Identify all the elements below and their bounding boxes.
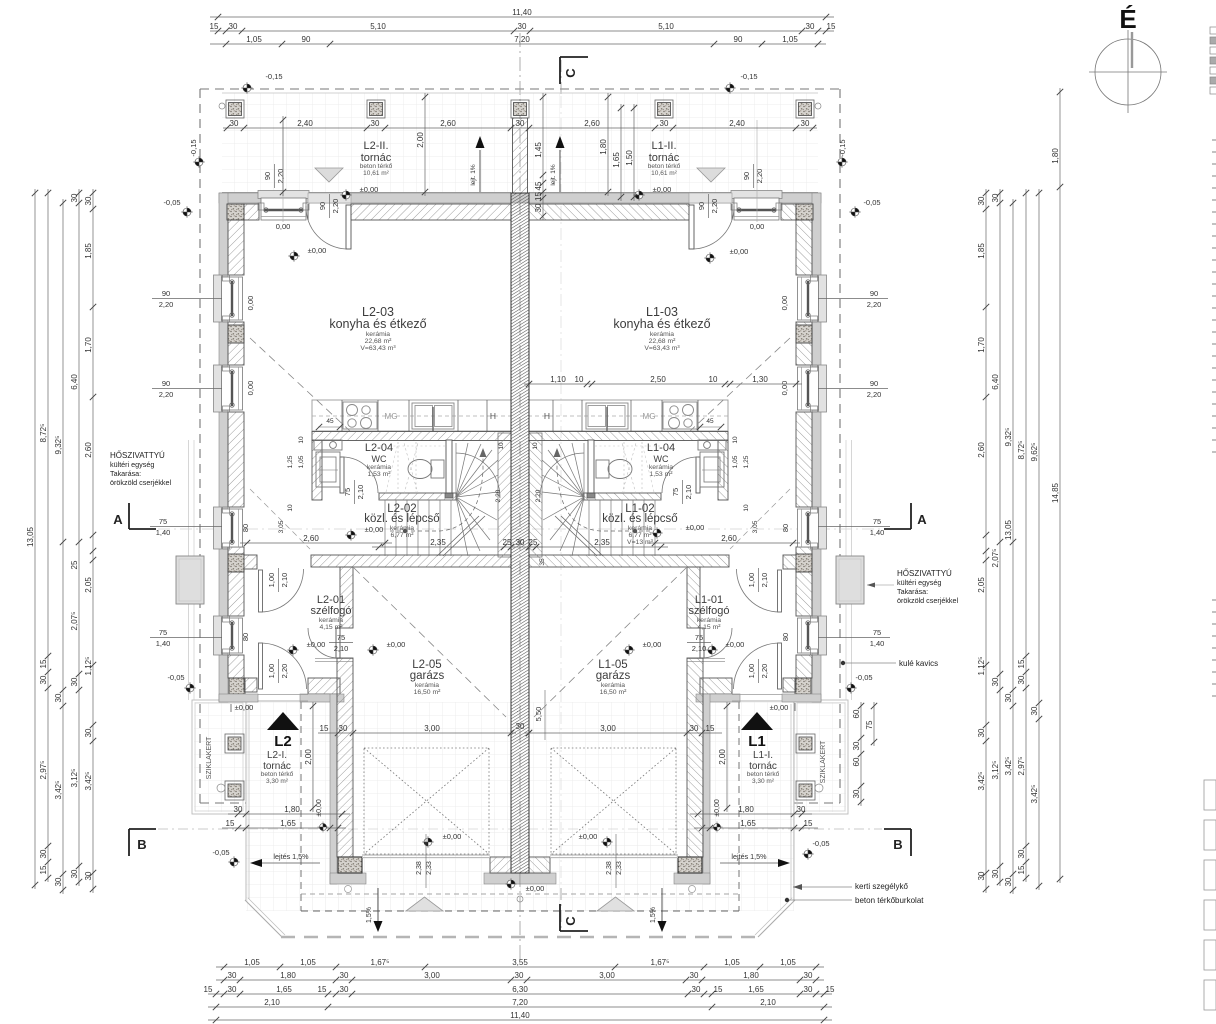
svg-text:C: C [563,68,578,78]
svg-text:90: 90 [318,202,327,210]
svg-text:75: 75 [695,633,703,642]
svg-text:30: 30 [1004,877,1013,886]
svg-text:kerámia: kerámia [601,682,625,689]
svg-text:30: 30 [1030,706,1039,715]
svg-text:szélfogó: szélfogó [311,605,352,617]
svg-text:13,05: 13,05 [26,526,35,547]
svg-text:1,05: 1,05 [246,35,262,44]
svg-text:1,67⁵: 1,67⁵ [651,958,670,967]
svg-text:2,38: 2,38 [416,861,423,875]
svg-text:H: H [544,411,550,421]
svg-text:kültéri egység: kültéri egység [897,578,941,587]
svg-text:80: 80 [781,524,790,532]
svg-text:1,65: 1,65 [276,985,292,994]
svg-text:beton térkő: beton térkő [360,163,393,170]
svg-text:1,65: 1,65 [740,819,756,828]
svg-text:30: 30 [229,22,238,31]
svg-text:30: 30 [534,203,543,212]
svg-text:kerámia: kerámia [319,617,343,624]
svg-text:2,33: 2,33 [426,861,433,875]
svg-text:kerámia: kerámia [628,525,652,532]
svg-text:0,00: 0,00 [246,296,255,311]
svg-text:-0,05: -0,05 [167,673,184,682]
svg-text:90: 90 [734,35,743,44]
svg-text:2,97⁵: 2,97⁵ [39,761,48,780]
svg-text:30: 30 [340,985,349,994]
svg-text:2,60: 2,60 [584,119,600,128]
svg-text:30: 30 [84,728,93,737]
svg-text:6,77 m²: 6,77 m² [628,532,652,539]
svg-text:±0,00: ±0,00 [316,799,323,817]
svg-text:2,50: 2,50 [650,375,666,384]
svg-text:15: 15 [1017,865,1026,874]
svg-text:30: 30 [70,677,79,686]
svg-text:16,50 m²: 16,50 m² [414,689,442,696]
svg-text:V=63,43 m³: V=63,43 m³ [360,345,396,352]
svg-text:lejt. 1%: lejt. 1% [550,164,557,186]
svg-text:6,40: 6,40 [991,374,1000,390]
svg-text:30: 30 [977,196,986,205]
svg-text:30: 30 [692,985,701,994]
svg-text:30: 30 [234,805,243,814]
svg-text:1,80: 1,80 [1051,148,1060,164]
svg-text:15: 15 [1017,659,1026,668]
svg-text:2,20: 2,20 [867,300,882,309]
svg-text:15: 15 [226,819,235,828]
svg-text:1,70: 1,70 [977,337,986,353]
svg-text:15: 15 [714,985,723,994]
svg-text:2,00: 2,00 [304,749,313,765]
svg-text:14,85: 14,85 [1051,482,1060,503]
svg-text:30: 30 [515,971,524,980]
svg-text:2,10: 2,10 [684,485,693,500]
svg-text:1,65: 1,65 [612,152,621,168]
svg-text:1,10: 1,10 [550,375,566,384]
svg-text:3,42⁵: 3,42⁵ [84,772,93,791]
svg-text:75: 75 [337,633,345,642]
svg-text:2,10: 2,10 [334,644,349,653]
svg-text:szélfogó: szélfogó [689,605,730,617]
svg-text:3,30 m²: 3,30 m² [752,778,775,785]
svg-text:±0,00: ±0,00 [235,703,254,712]
svg-text:9,32⁵: 9,32⁵ [1004,428,1013,447]
svg-text:0,00: 0,00 [780,381,789,396]
svg-text:10: 10 [743,504,750,512]
svg-text:15: 15 [320,724,329,733]
svg-text:10: 10 [709,375,718,384]
svg-text:30: 30 [991,869,1000,878]
svg-text:10: 10 [298,436,305,444]
svg-text:3,12⁵: 3,12⁵ [70,769,79,788]
svg-text:30: 30 [84,871,93,880]
svg-text:75: 75 [671,488,680,496]
svg-text:75: 75 [865,720,874,729]
svg-text:1,05: 1,05 [780,958,796,967]
svg-text:2,60: 2,60 [721,534,737,543]
svg-text:WC: WC [654,454,669,464]
svg-text:1,30: 1,30 [752,375,768,384]
svg-text:L2-04: L2-04 [365,442,393,454]
svg-text:3,42⁵: 3,42⁵ [1004,757,1013,776]
svg-text:±0,00: ±0,00 [579,832,598,841]
svg-text:±0,00: ±0,00 [526,884,545,893]
svg-text:3,00: 3,00 [424,971,440,980]
svg-text:30: 30 [806,22,815,31]
svg-text:2,20: 2,20 [710,199,719,214]
svg-text:2,10: 2,10 [760,998,776,1007]
svg-text:1,85: 1,85 [84,243,93,259]
svg-text:25: 25 [503,538,512,547]
svg-text:30: 30 [804,971,813,980]
svg-text:2,10: 2,10 [692,644,707,653]
svg-text:2,20: 2,20 [867,390,882,399]
svg-text:2,07⁵: 2,07⁵ [70,612,79,631]
svg-text:15: 15 [534,192,543,201]
svg-text:kerámia: kerámia [367,464,391,471]
svg-text:45: 45 [326,418,334,425]
svg-text:SZIKLAKERT: SZIKLAKERT [820,740,827,783]
svg-text:30: 30 [516,119,525,128]
svg-text:90: 90 [162,379,170,388]
svg-text:V=63,43 m³: V=63,43 m³ [644,345,680,352]
svg-text:2,20: 2,20 [159,390,174,399]
svg-text:9,62⁵: 9,62⁵ [1030,443,1039,462]
svg-text:30: 30 [70,869,79,878]
svg-text:C: C [563,916,578,926]
svg-text:15: 15 [204,985,213,994]
svg-text:közl. és lépcső: közl. és lépcső [602,513,677,525]
svg-text:2,38: 2,38 [606,861,613,875]
svg-text:2,97⁵: 2,97⁵ [1017,757,1026,776]
svg-text:30: 30 [852,789,861,798]
svg-text:30: 30 [339,724,348,733]
svg-text:-0,15: -0,15 [838,139,847,156]
svg-text:10: 10 [575,375,584,384]
svg-text:90: 90 [697,202,706,210]
svg-text:MG: MG [643,412,656,421]
svg-text:30: 30 [690,971,699,980]
svg-text:75: 75 [343,488,352,496]
svg-text:-0,05: -0,05 [212,848,229,857]
svg-text:±0,00: ±0,00 [714,799,721,817]
svg-text:1,80: 1,80 [284,805,300,814]
svg-text:22,68 m²: 22,68 m² [649,338,677,345]
svg-text:15: 15 [706,724,715,733]
svg-text:2,05: 2,05 [84,577,93,593]
svg-text:L1-II.: L1-II. [651,140,676,152]
svg-text:3,00: 3,00 [424,724,440,733]
svg-text:60: 60 [852,757,861,766]
svg-text:2,20: 2,20 [276,169,285,184]
svg-text:1,53 m²: 1,53 m² [649,471,673,478]
svg-text:2,60: 2,60 [303,534,319,543]
svg-text:garázs: garázs [596,670,631,682]
svg-text:±0,00: ±0,00 [387,640,406,649]
svg-text:HŐSZIVATTYÚ: HŐSZIVATTYÚ [110,451,165,460]
svg-text:16,50 m²: 16,50 m² [600,689,628,696]
svg-text:1,65: 1,65 [280,819,296,828]
svg-text:1,12⁵: 1,12⁵ [977,657,986,676]
svg-text:beton térkőburkolat: beton térkőburkolat [855,896,924,905]
svg-text:30: 30 [797,805,806,814]
svg-text:MG: MG [385,412,398,421]
svg-text:B: B [893,837,902,852]
svg-text:WC: WC [372,454,387,464]
svg-text:2,10: 2,10 [356,485,365,500]
svg-text:6,77 m²: 6,77 m² [390,532,414,539]
svg-text:L2-I.: L2-I. [267,750,287,761]
svg-text:2,20: 2,20 [331,199,340,214]
svg-text:1,80: 1,80 [280,971,296,980]
svg-text:-0,15: -0,15 [189,139,198,156]
svg-text:1,40: 1,40 [156,528,171,537]
svg-text:1,40: 1,40 [870,639,885,648]
svg-text:30: 30 [54,693,63,702]
svg-text:45: 45 [706,418,714,425]
svg-text:80: 80 [241,524,250,532]
svg-text:0,00: 0,00 [246,381,255,396]
svg-text:2,10: 2,10 [760,573,769,588]
svg-text:±0,00: ±0,00 [365,525,384,534]
svg-text:2,20: 2,20 [280,664,289,679]
svg-text:1,70: 1,70 [84,337,93,353]
svg-text:É: É [1119,4,1136,34]
svg-text:35: 35 [539,558,546,566]
svg-text:2,20: 2,20 [760,664,769,679]
svg-text:0,00: 0,00 [276,222,291,231]
svg-text:11,40: 11,40 [512,8,532,17]
svg-text:kerámia: kerámia [697,617,721,624]
svg-text:1,00: 1,00 [267,664,276,679]
svg-text:1,65: 1,65 [748,985,764,994]
svg-text:2,10: 2,10 [280,573,289,588]
svg-text:1,05: 1,05 [732,455,739,468]
svg-text:3,05: 3,05 [752,520,759,533]
svg-text:2,07⁵: 2,07⁵ [991,549,1000,568]
svg-text:2,40: 2,40 [297,119,313,128]
svg-text:1,67⁵: 1,67⁵ [371,958,390,967]
svg-text:45: 45 [534,181,543,190]
svg-text:2,20: 2,20 [495,489,502,502]
svg-text:30: 30 [340,971,349,980]
svg-text:kerámia: kerámia [649,464,673,471]
svg-text:11,40: 11,40 [510,1011,530,1020]
svg-text:B: B [137,837,146,852]
svg-text:L1: L1 [748,733,766,750]
svg-text:30: 30 [228,971,237,980]
svg-text:10: 10 [532,442,539,450]
svg-text:1,5%: 1,5% [650,907,657,923]
svg-text:5,10: 5,10 [658,22,674,31]
svg-text:1,50: 1,50 [625,150,634,166]
svg-text:3,00: 3,00 [599,971,615,980]
svg-text:3,55: 3,55 [512,958,528,967]
svg-text:1,00: 1,00 [747,664,756,679]
svg-text:30: 30 [371,119,380,128]
svg-text:1,53 m²: 1,53 m² [367,471,391,478]
svg-text:10: 10 [287,504,294,512]
svg-text:15: 15 [826,985,835,994]
svg-text:3,05: 3,05 [278,520,285,533]
svg-text:1,25: 1,25 [287,455,294,468]
svg-text:1,45: 1,45 [534,142,543,158]
svg-text:kulé kavics: kulé kavics [899,659,938,668]
svg-text:75: 75 [159,517,167,526]
svg-text:örökzöld cserjékkel: örökzöld cserjékkel [897,596,959,605]
svg-text:1,40: 1,40 [156,639,171,648]
svg-text:1,00: 1,00 [747,573,756,588]
svg-text:30: 30 [852,741,861,750]
svg-text:±0,00: ±0,00 [730,247,749,256]
svg-text:1,80: 1,80 [738,805,754,814]
svg-text:Takarása:: Takarása: [110,469,141,478]
svg-text:10,61 m²: 10,61 m² [651,170,677,177]
svg-text:beton térkő: beton térkő [747,771,780,778]
svg-text:±0,00: ±0,00 [443,832,462,841]
svg-text:H: H [490,411,496,421]
svg-text:konyha és étkező: konyha és étkező [613,317,710,331]
svg-text:4,15 m²: 4,15 m² [319,624,343,631]
svg-text:30: 30 [39,675,48,684]
svg-text:8,72⁵: 8,72⁵ [39,424,48,443]
svg-text:L1-I.: L1-I. [753,750,773,761]
svg-text:30: 30 [977,871,986,880]
svg-text:1,5%: 1,5% [366,907,373,923]
svg-text:5,50: 5,50 [534,707,543,722]
svg-text:A: A [917,512,927,527]
svg-text:2,20: 2,20 [755,169,764,184]
svg-text:1,05: 1,05 [724,958,740,967]
svg-text:2,20: 2,20 [535,489,542,502]
svg-text:90: 90 [263,172,272,180]
svg-text:5,10: 5,10 [370,22,386,31]
svg-text:L1-04: L1-04 [647,442,675,454]
svg-text:1,05: 1,05 [244,958,260,967]
svg-text:±0,00: ±0,00 [770,703,789,712]
svg-text:SZIKLAKERT: SZIKLAKERT [206,736,213,779]
svg-text:10: 10 [732,436,739,444]
svg-text:60: 60 [852,709,861,718]
svg-text:örökzöld cserjékkel: örökzöld cserjékkel [110,478,172,487]
svg-text:2,40: 2,40 [729,119,745,128]
svg-text:10: 10 [498,442,505,450]
svg-text:75: 75 [873,628,881,637]
svg-text:-0,05: -0,05 [812,839,829,848]
svg-text:8,72⁵: 8,72⁵ [1017,441,1026,460]
svg-text:30: 30 [977,728,986,737]
svg-text:6,30: 6,30 [512,985,528,994]
svg-text:2,60: 2,60 [977,442,986,458]
svg-text:lejtés 1,5%: lejtés 1,5% [273,852,309,861]
svg-text:15: 15 [39,865,48,874]
svg-text:A: A [113,512,123,527]
svg-text:garázs: garázs [410,670,445,682]
svg-text:±0,00: ±0,00 [686,523,705,532]
svg-text:30: 30 [228,985,237,994]
svg-text:1,80: 1,80 [743,971,759,980]
svg-text:9,32⁵: 9,32⁵ [54,436,63,455]
svg-text:30: 30 [804,985,813,994]
svg-text:30: 30 [516,722,525,731]
svg-text:-0,05: -0,05 [163,198,180,207]
svg-text:kerámia: kerámia [366,331,390,338]
svg-text:30: 30 [801,119,810,128]
svg-text:3,42⁵: 3,42⁵ [977,772,986,791]
svg-text:30: 30 [54,877,63,886]
svg-text:80: 80 [241,633,250,641]
svg-text:3,42⁵: 3,42⁵ [1030,785,1039,804]
svg-text:2,33: 2,33 [616,861,623,875]
svg-text:2,00: 2,00 [718,749,727,765]
svg-text:1,80: 1,80 [599,139,608,155]
svg-text:30: 30 [1017,849,1026,858]
svg-text:kerámia: kerámia [415,682,439,689]
svg-text:közl. és lépcső: közl. és lépcső [364,513,439,525]
svg-text:±0,00: ±0,00 [643,640,662,649]
svg-text:beton térkő: beton térkő [261,771,294,778]
svg-text:-0,15: -0,15 [265,72,282,81]
svg-text:90: 90 [742,172,751,180]
svg-text:90: 90 [870,289,878,298]
svg-text:kültéri egység: kültéri egység [110,460,154,469]
svg-text:2,05: 2,05 [977,577,986,593]
svg-text:3,42⁵: 3,42⁵ [54,781,63,800]
svg-text:2,10: 2,10 [264,998,280,1007]
svg-text:3,30 m²: 3,30 m² [266,778,289,785]
svg-text:beton térkő: beton térkő [648,163,681,170]
svg-text:3,12⁵: 3,12⁵ [991,761,1000,780]
svg-text:Takarása:: Takarása: [897,587,928,596]
svg-text:25: 25 [529,538,538,547]
svg-text:-0,05: -0,05 [863,198,880,207]
svg-text:75: 75 [159,628,167,637]
svg-text:90: 90 [870,379,878,388]
svg-text:lejt. 1%: lejt. 1% [470,164,477,186]
svg-text:30: 30 [518,22,527,31]
svg-text:V=13 m³: V=13 m³ [627,539,654,546]
svg-text:1,05: 1,05 [298,455,305,468]
svg-text:90: 90 [162,289,170,298]
svg-text:15: 15 [210,22,219,31]
svg-text:2,35: 2,35 [430,538,446,547]
svg-text:kerámia: kerámia [390,525,414,532]
svg-text:30: 30 [991,193,1000,202]
svg-text:1,12⁵: 1,12⁵ [84,657,93,676]
svg-text:2,60: 2,60 [440,119,456,128]
svg-text:30: 30 [230,119,239,128]
svg-text:3,00: 3,00 [600,724,616,733]
svg-text:30: 30 [1017,675,1026,684]
svg-text:30: 30 [70,193,79,202]
svg-text:30: 30 [516,538,525,547]
svg-text:30: 30 [690,724,699,733]
svg-text:75: 75 [873,517,881,526]
svg-text:1,00: 1,00 [267,573,276,588]
svg-text:30: 30 [39,849,48,858]
svg-text:kerti szegélykő: kerti szegélykő [855,882,908,891]
svg-text:10,61 m²: 10,61 m² [363,170,389,177]
svg-text:22,68 m²: 22,68 m² [365,338,393,345]
svg-text:1,40: 1,40 [870,528,885,537]
svg-text:konyha és étkező: konyha és étkező [329,317,426,331]
svg-text:30: 30 [660,119,669,128]
svg-text:-0,05: -0,05 [855,673,872,682]
svg-text:13,05: 13,05 [1004,519,1013,540]
svg-text:1,85: 1,85 [977,243,986,259]
svg-text:±0,00: ±0,00 [360,185,379,194]
svg-text:2,60: 2,60 [84,442,93,458]
svg-text:6,40: 6,40 [70,374,79,390]
